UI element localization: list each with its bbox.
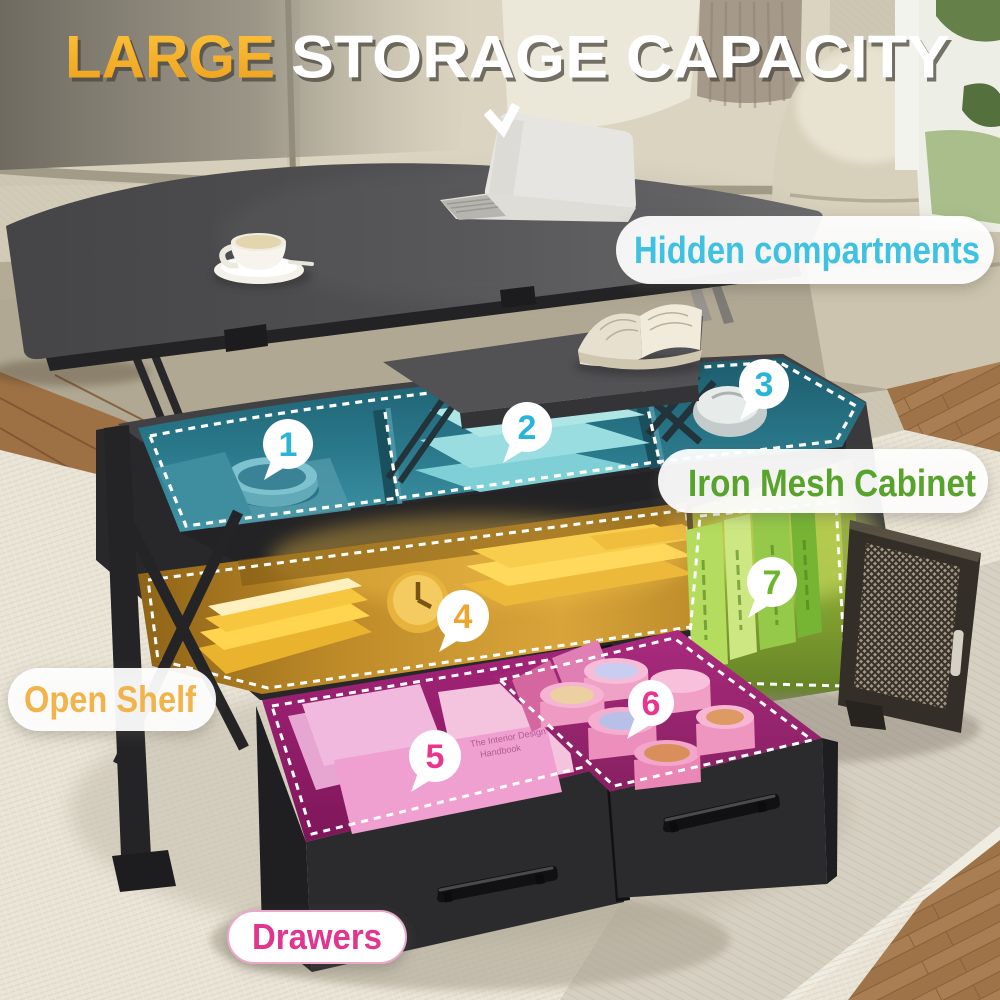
svg-text:LARGE: LARGE — [65, 23, 275, 91]
svg-text:Drawers: Drawers — [252, 916, 382, 957]
svg-text:Hidden compartments: Hidden compartments — [634, 230, 980, 272]
svg-text:4: 4 — [454, 598, 473, 636]
svg-text:2: 2 — [518, 409, 537, 447]
svg-text:Open Shelf: Open Shelf — [24, 679, 197, 720]
svg-text:5: 5 — [426, 738, 445, 776]
svg-text:6: 6 — [642, 685, 661, 723]
svg-text:Iron Mesh Cabinet: Iron Mesh Cabinet — [688, 463, 976, 505]
svg-text:3: 3 — [755, 366, 774, 404]
svg-text:STORAGE CAPACITY: STORAGE CAPACITY — [291, 23, 950, 91]
svg-text:1: 1 — [279, 426, 298, 464]
svg-text:7: 7 — [763, 564, 782, 602]
